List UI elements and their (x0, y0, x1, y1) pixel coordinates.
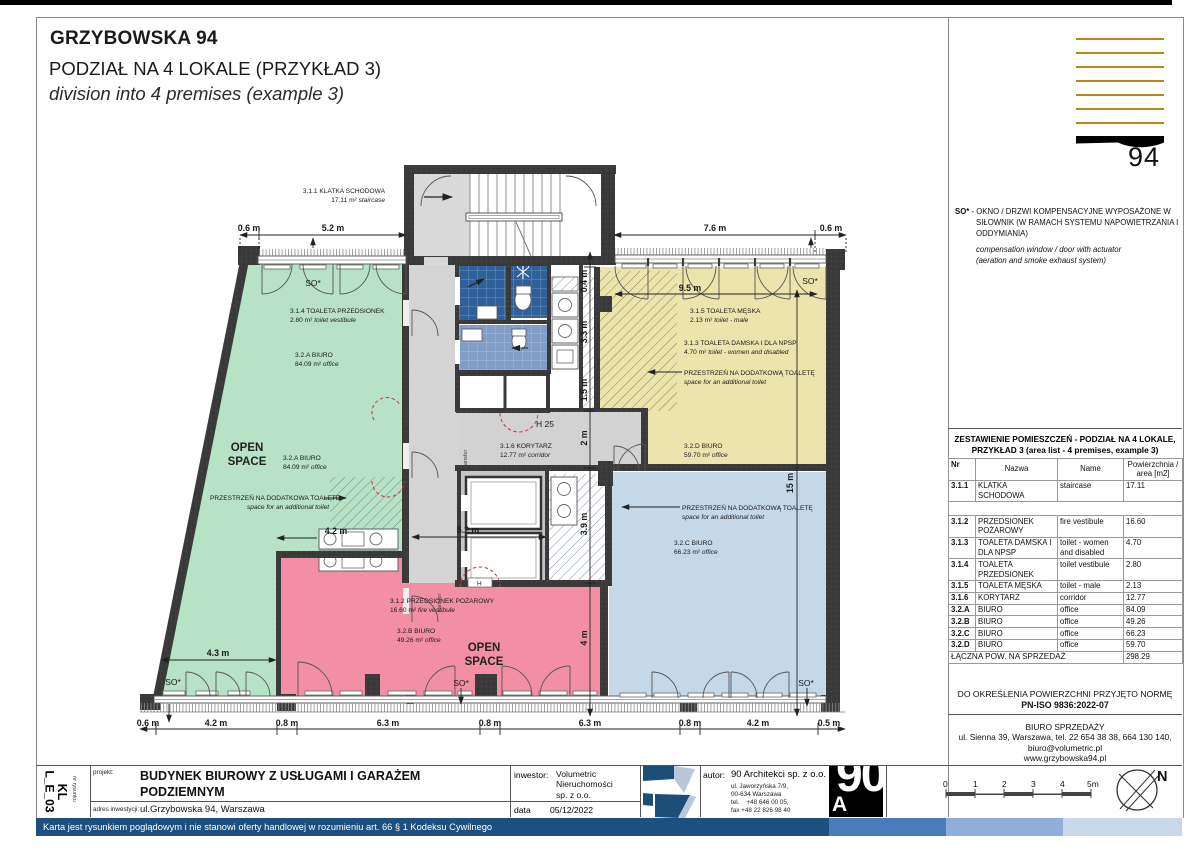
svg-text:3.2.A BIURO: 3.2.A BIURO (283, 455, 321, 462)
svg-text:SPACE: SPACE (228, 456, 267, 468)
svg-text:2.80 m² toilet vestibule: 2.80 m² toilet vestibule (290, 317, 356, 324)
svg-text:space for an additional toilet: space for an additional toilet (247, 504, 330, 511)
svg-text:3.1.4 TOALETA PRZEDSIONEK: 3.1.4 TOALETA PRZEDSIONEK (290, 308, 385, 315)
svg-text:0.6 m: 0.6 m (137, 718, 160, 728)
svg-text:space for an additional toilet: space for an additional toilet (682, 514, 765, 521)
svg-text:H: H (477, 581, 482, 588)
svg-text:4.2 m: 4.2 m (325, 526, 348, 536)
svg-text:0.8 m: 0.8 m (276, 718, 299, 728)
svg-text:3.1.6 KORYTARZ: 3.1.6 KORYTARZ (500, 443, 552, 450)
svg-text:PRZESTRZEŃ NA DODATKOWA TOALET: PRZESTRZEŃ NA DODATKOWA TOALETE (210, 493, 341, 502)
svg-text:space for an additional toilet: space for an additional toilet (684, 379, 767, 386)
svg-text:49.26 m² office: 49.26 m² office (397, 637, 441, 644)
svg-text:SO*: SO* (305, 278, 321, 288)
svg-text:5.2 m: 5.2 m (322, 223, 345, 233)
svg-text:PRZESTRZEŃ NA DODATKOWĄ TOALET: PRZESTRZEŃ NA DODATKOWĄ TOALETĘ (684, 368, 815, 377)
svg-text:59.70 m² office: 59.70 m² office (684, 452, 728, 459)
svg-text:transfer: transfer (463, 450, 469, 469)
svg-text:66.23 m² office: 66.23 m² office (674, 549, 718, 556)
svg-text:transfer: transfer (405, 551, 411, 570)
svg-text:84.09 m² office: 84.09 m² office (283, 464, 327, 471)
svg-text:16.60 m² fire vestibule: 16.60 m² fire vestibule (390, 607, 455, 614)
svg-text:H 25: H 25 (536, 419, 554, 429)
svg-text:6.3 m: 6.3 m (377, 718, 400, 728)
svg-text:6.3 m: 6.3 m (579, 718, 602, 728)
svg-text:0.8 m: 0.8 m (479, 718, 502, 728)
svg-text:3.2.B BIURO: 3.2.B BIURO (397, 628, 435, 635)
svg-text:5.2 m: 5.2 m (457, 525, 480, 535)
svg-text:0.6 m: 0.6 m (820, 223, 843, 233)
svg-text:SO*: SO* (165, 677, 181, 687)
svg-text:1.5 m: 1.5 m (579, 379, 589, 402)
svg-text:84.09 m² office: 84.09 m² office (295, 361, 339, 368)
svg-text:3.2.D BIURO: 3.2.D BIURO (684, 443, 722, 450)
svg-text:transfer: transfer (437, 594, 443, 613)
svg-text:4 m: 4 m (579, 630, 589, 645)
svg-text:OPEN: OPEN (468, 642, 501, 654)
svg-text:4.3 m: 4.3 m (207, 648, 230, 658)
svg-text:3.1.1 KLATKA SCHODOWA: 3.1.1 KLATKA SCHODOWA (303, 188, 386, 195)
svg-text:0.4 m: 0.4 m (579, 270, 589, 293)
svg-text:7.6 m: 7.6 m (704, 223, 727, 233)
svg-text:transfer: transfer (404, 408, 410, 427)
svg-text:3.9 m: 3.9 m (579, 513, 589, 536)
svg-text:3.2.A BIURO: 3.2.A BIURO (295, 352, 333, 359)
svg-text:9.5 m: 9.5 m (679, 283, 702, 293)
svg-text:OPEN: OPEN (231, 442, 264, 454)
svg-text:3.2.C BIURO: 3.2.C BIURO (674, 540, 712, 547)
svg-text:4.2 m: 4.2 m (747, 718, 770, 728)
svg-text:12.77 m² corridor: 12.77 m² corridor (500, 452, 551, 459)
svg-text:0.8 m: 0.8 m (679, 718, 702, 728)
svg-text:SO*: SO* (453, 678, 469, 688)
svg-text:2 m: 2 m (579, 430, 589, 445)
svg-text:SPACE: SPACE (465, 656, 504, 668)
svg-text:3.3 m: 3.3 m (579, 321, 589, 344)
svg-text:17.11 m² staircase: 17.11 m² staircase (331, 197, 385, 204)
svg-text:PRZESTRZEŃ NA DODATKOWĄ TOALET: PRZESTRZEŃ NA DODATKOWĄ TOALETĘ (682, 503, 813, 512)
svg-text:0.6 m: 0.6 m (238, 223, 261, 233)
svg-text:0.5 m: 0.5 m (818, 718, 841, 728)
svg-text:SO*: SO* (798, 678, 814, 688)
svg-text:4.70 m² toilet - women and dis: 4.70 m² toilet - women and disabled (684, 349, 789, 356)
svg-text:3.1.5 TOALETA MĘSKA: 3.1.5 TOALETA MĘSKA (690, 308, 761, 315)
svg-text:4.2 m: 4.2 m (205, 718, 228, 728)
svg-text:SO*: SO* (802, 276, 818, 286)
svg-text:3.1.3 TOALETA DAMSKA I DLA NPS: 3.1.3 TOALETA DAMSKA I DLA NPSP (684, 340, 797, 347)
svg-text:2.13 m² toilet - male: 2.13 m² toilet - male (690, 317, 749, 324)
svg-text:15 m: 15 m (785, 473, 795, 493)
